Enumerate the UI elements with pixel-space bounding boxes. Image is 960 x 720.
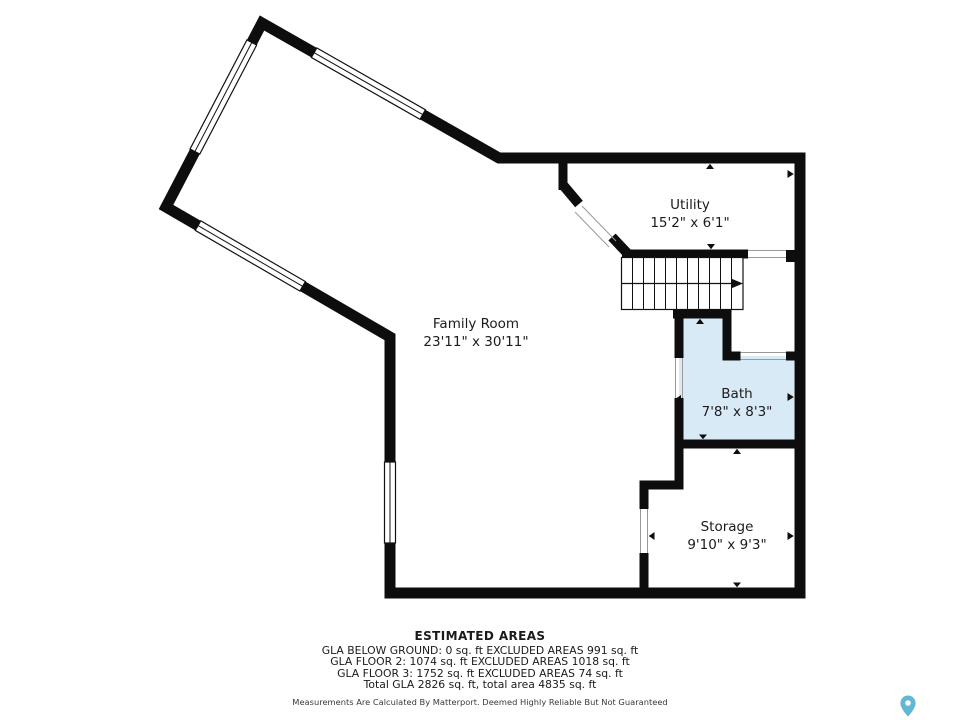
family-room-label: Family Room: [433, 316, 519, 332]
window-lower-left: [195, 221, 305, 291]
room-utility: Utility 15'2" x 6'1": [650, 197, 729, 231]
estimated-areas-title: ESTIMATED AREAS: [0, 629, 960, 643]
bath-label: Bath: [721, 386, 752, 402]
window-upper-left: [190, 40, 257, 154]
window-upper-right: [311, 48, 425, 119]
storage-dimensions: 9'10" x 9'3": [687, 537, 766, 553]
bath-dimensions: 7'8" x 8'3": [702, 404, 773, 420]
utility-dimensions: 15'2" x 6'1": [650, 215, 729, 231]
estimated-areas-block: ESTIMATED AREAS GLA BELOW GROUND: 0 sq. …: [0, 629, 960, 707]
room-family-room: Family Room 23'11" x 30'11": [423, 316, 528, 350]
floor-plan-page: Family Room 23'11" x 30'11" Utility 15'2…: [0, 0, 960, 720]
measurement-disclaimer: Measurements Are Calculated By Matterpor…: [0, 697, 960, 707]
window-left-wall: [385, 462, 396, 543]
total-gla-line: Total GLA 2826 sq. ft, total area 4835 s…: [0, 679, 960, 690]
floor-plan-svg: Family Room 23'11" x 30'11" Utility 15'2…: [0, 0, 960, 720]
utility-label: Utility: [670, 197, 710, 213]
family-room-dimensions: 23'11" x 30'11": [423, 334, 528, 350]
gla-floor-2-line: GLA FLOOR 2: 1074 sq. ft EXCLUDED AREAS …: [0, 656, 960, 667]
bath-room-fill: [679, 314, 794, 444]
storage-label: Storage: [701, 519, 754, 535]
room-storage: Storage 9'10" x 9'3": [687, 519, 766, 553]
staircase: [622, 258, 744, 310]
